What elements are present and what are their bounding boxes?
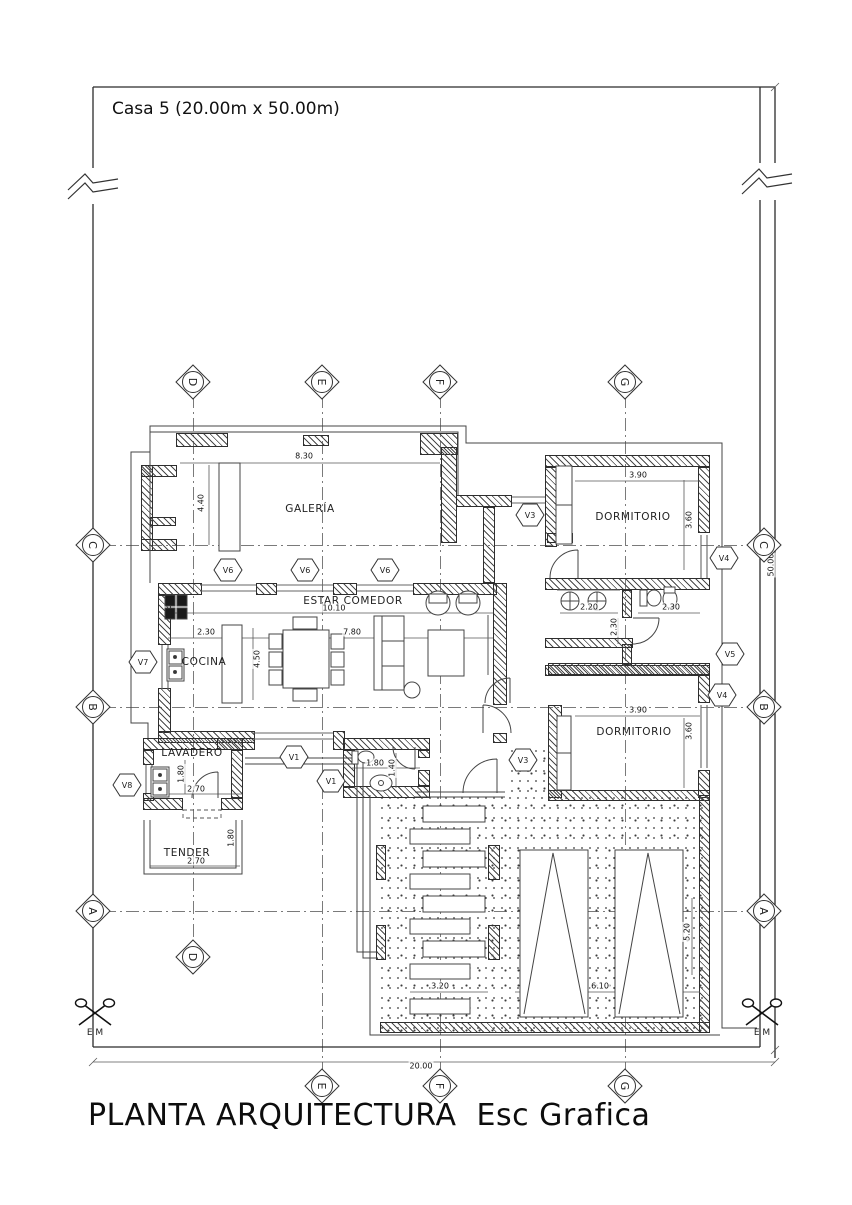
svg-text:B: B (86, 703, 99, 711)
dimension-label: 3.60 (685, 721, 694, 741)
svg-text:V6: V6 (380, 566, 391, 575)
window-tag: V6 (213, 557, 243, 583)
dimension-label: 2.30 (196, 628, 216, 637)
grid-marker: D (174, 363, 212, 401)
dimension-label: 3.90 (628, 706, 648, 715)
dimension-label: 10.10 (322, 604, 347, 613)
svg-text:V7: V7 (138, 658, 149, 667)
dimension-label: 2.70 (186, 785, 206, 794)
door-threshold-dashed (183, 810, 221, 818)
svg-text:A: A (757, 907, 770, 915)
grid-marker: E (303, 363, 341, 401)
dimension-label: 1.80 (177, 764, 186, 784)
plan-title: PLANTA ARQUITECTURA Esc Grafica (88, 1098, 650, 1133)
grid-marker: A (745, 892, 783, 930)
window-tag: V3 (508, 747, 538, 773)
boundary-break-symbol (65, 166, 121, 206)
dimension-label: 2.70 (186, 857, 206, 866)
grid-marker: B (74, 688, 112, 726)
svg-text:B: B (757, 703, 770, 711)
window-tag: V4 (709, 545, 739, 571)
room-label: GALERÍA (285, 503, 335, 515)
svg-text:D: D (186, 378, 199, 386)
svg-text:C: C (757, 541, 770, 549)
dimension-label: 2.30 (661, 603, 681, 612)
survey-marker: E M (739, 995, 785, 1037)
dimension-label: 4.40 (197, 493, 206, 513)
grid-marker: F (421, 363, 459, 401)
svg-text:V6: V6 (223, 566, 234, 575)
grid-marker: G (606, 363, 644, 401)
window-tag: V8 (112, 772, 142, 798)
svg-text:V4: V4 (719, 554, 730, 563)
dimension-label: 3.60 (685, 510, 694, 530)
room-label: DORMITORIO (595, 511, 670, 523)
svg-text:A: A (86, 907, 99, 915)
dimension-label: 2.30 (610, 617, 619, 637)
svg-text:C: C (86, 541, 99, 549)
svg-text:V1: V1 (326, 777, 337, 786)
dimension-label: 6.10 (590, 982, 610, 991)
window-tag: V1 (316, 768, 346, 794)
grid-marker: A (74, 892, 112, 930)
svg-text:V6: V6 (300, 566, 311, 575)
dimension-label: 3.20 (430, 982, 450, 991)
window-tag: V4 (707, 682, 737, 708)
plan-linework (0, 0, 852, 1205)
door-swings (192, 550, 659, 798)
dimension-label: 8.30 (294, 452, 314, 461)
dimension-label: 1.80 (227, 828, 236, 848)
svg-text:D: D (186, 953, 199, 961)
boundary-break-symbol (739, 161, 795, 201)
svg-text:F: F (433, 379, 446, 385)
svg-text:F: F (433, 1083, 446, 1089)
window-tag: V6 (370, 557, 400, 583)
svg-text:G: G (618, 1082, 631, 1091)
survey-marker: E M (72, 995, 118, 1037)
window-tag: V7 (128, 649, 158, 675)
svg-text:E M: E M (754, 1028, 770, 1037)
window-tag: V3 (515, 502, 545, 528)
dimension-label: 1.40 (388, 758, 397, 778)
svg-text:E: E (315, 379, 328, 386)
svg-text:V4: V4 (717, 691, 728, 700)
patio-deck (410, 806, 683, 1017)
svg-text:G: G (618, 378, 631, 387)
room-label: ESTAR COMEDOR (303, 595, 402, 607)
svg-text:V8: V8 (122, 781, 133, 790)
room-label: COCINA (182, 656, 227, 668)
floor-plan-sheet: Casa 5 (20.00m x 50.00m) (0, 0, 852, 1205)
grid-marker: C (74, 526, 112, 564)
grid-marker: B (745, 688, 783, 726)
room-label: DORMITORIO (596, 726, 671, 738)
dimension-label: 4.50 (253, 649, 262, 669)
dimension-label: 5.20 (683, 922, 692, 942)
svg-text:E M: E M (87, 1028, 103, 1037)
dimension-label: 3.90 (628, 471, 648, 480)
svg-text:V5: V5 (725, 650, 736, 659)
dimension-label: 2.20 (579, 603, 599, 612)
dimension-label: 7.80 (342, 628, 362, 637)
grid-marker: C (745, 526, 783, 564)
svg-text:V1: V1 (289, 753, 300, 762)
window-tag: V1 (279, 744, 309, 770)
room-label: LAVADERO (161, 747, 222, 759)
window-tag: V5 (715, 641, 745, 667)
svg-text:E: E (315, 1083, 328, 1090)
grid-marker: D (174, 938, 212, 976)
svg-text:V3: V3 (525, 511, 536, 520)
svg-text:V3: V3 (518, 756, 529, 765)
dimension-label: 1.80 (365, 759, 385, 768)
window-tag: V6 (290, 557, 320, 583)
